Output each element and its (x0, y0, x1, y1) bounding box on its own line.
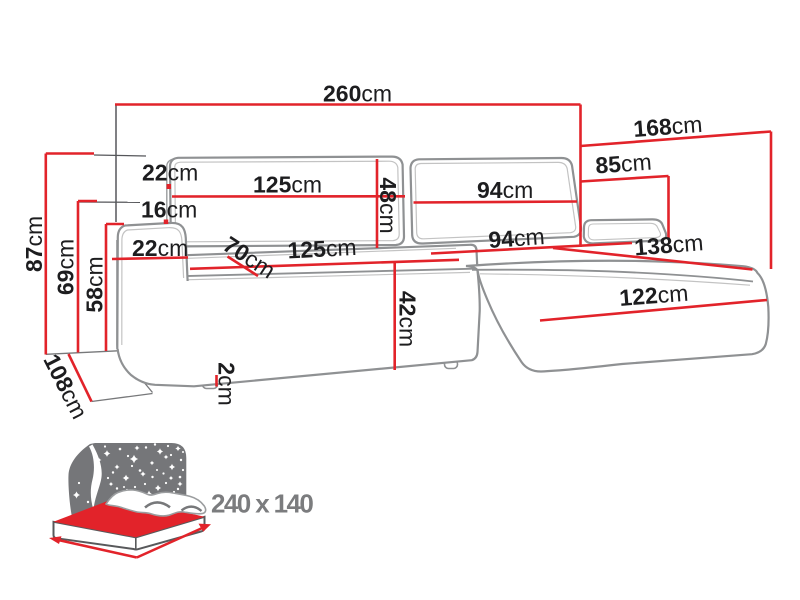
svg-text:168cm: 168cm (632, 111, 703, 142)
svg-text:22cm: 22cm (132, 235, 188, 261)
svg-text:58cm: 58cm (82, 256, 108, 312)
svg-text:16cm: 16cm (141, 197, 197, 223)
svg-text:69cm: 69cm (53, 239, 79, 295)
svg-text:240 x 140: 240 x 140 (211, 489, 313, 519)
svg-text:42cm: 42cm (395, 291, 421, 347)
svg-text:94cm: 94cm (488, 223, 546, 253)
svg-text:94cm: 94cm (477, 177, 533, 203)
svg-text:2cm: 2cm (214, 362, 240, 405)
svg-text:138cm: 138cm (633, 229, 704, 260)
svg-text:85cm: 85cm (595, 149, 653, 179)
svg-text:87cm: 87cm (21, 216, 47, 272)
svg-text:260cm: 260cm (323, 81, 392, 107)
svg-text:125cm: 125cm (253, 172, 322, 198)
svg-text:22cm: 22cm (142, 160, 198, 186)
svg-text:122cm: 122cm (618, 280, 689, 311)
svg-text:125cm: 125cm (287, 234, 357, 264)
svg-text:48cm: 48cm (375, 177, 401, 233)
